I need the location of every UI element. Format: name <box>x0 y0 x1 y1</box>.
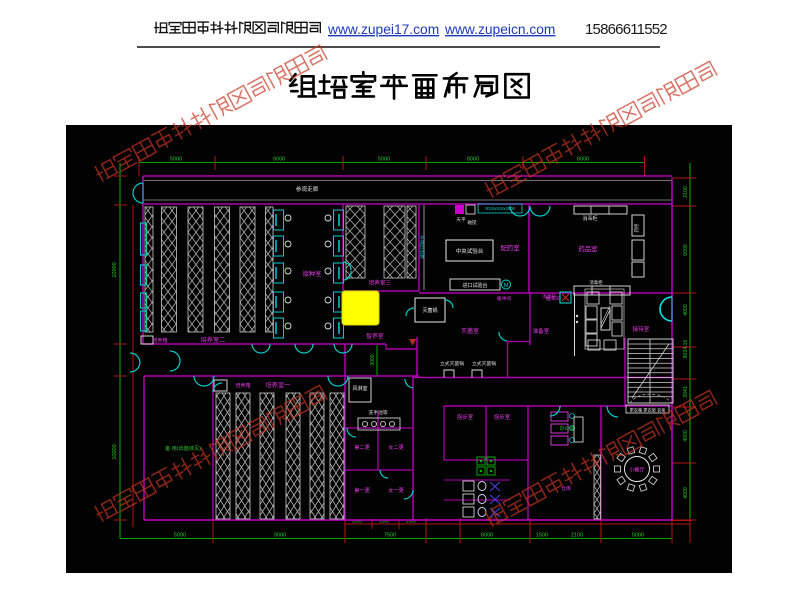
svg-text:2100: 2100 <box>683 186 689 198</box>
svg-text:9000: 9000 <box>273 157 285 163</box>
svg-text:接待室: 接待室 <box>633 325 650 333</box>
svg-text:8000: 8000 <box>467 157 479 163</box>
svg-text:灭菌室: 灭菌室 <box>461 327 479 335</box>
svg-text:10000: 10000 <box>112 262 118 277</box>
svg-text:10000: 10000 <box>112 444 118 459</box>
svg-text:培养室三: 培养室三 <box>369 279 392 287</box>
svg-text:缓冲间: 缓冲间 <box>497 295 512 302</box>
svg-text:9000: 9000 <box>274 533 286 539</box>
svg-text:5000: 5000 <box>632 533 644 539</box>
svg-text:培养箱: 培养箱 <box>152 337 167 344</box>
svg-text:www.zupei17.com: www.zupei17.com <box>327 22 439 37</box>
svg-text:接种室: 接种室 <box>303 270 322 278</box>
svg-text:立式灭菌锅: 立式灭菌锅 <box>472 360 496 367</box>
svg-text:洗手池等: 洗手池等 <box>368 409 387 416</box>
svg-text:小餐厅: 小餐厅 <box>629 466 645 474</box>
svg-text:8000: 8000 <box>577 157 589 163</box>
svg-text:8000: 8000 <box>481 533 493 539</box>
svg-text:第一更: 第一更 <box>354 486 370 494</box>
svg-text:办公室: 办公室 <box>559 425 574 432</box>
svg-text:4000: 4000 <box>683 430 689 442</box>
svg-text:天平: 天平 <box>456 217 466 223</box>
svg-text:仓库: 仓库 <box>561 485 571 492</box>
svg-text:中央试验台: 中央试验台 <box>456 247 484 255</box>
svg-text:第二更: 第二更 <box>354 443 370 451</box>
svg-text:2041: 2041 <box>683 386 689 398</box>
svg-text:女一更: 女一更 <box>388 486 404 494</box>
svg-text:4000: 4000 <box>683 304 689 316</box>
svg-text:药柜: 药柜 <box>633 223 640 232</box>
svg-text:培养箱: 培养箱 <box>235 382 250 389</box>
svg-text:www.zupeicn.com: www.zupeicn.com <box>444 22 555 37</box>
svg-text:5000: 5000 <box>378 157 390 163</box>
svg-text:拐步室: 拐步室 <box>494 413 511 421</box>
svg-text:进口试验台: 进口试验台 <box>462 282 487 289</box>
svg-text:2100: 2100 <box>571 533 583 539</box>
svg-text:配药室: 配药室 <box>500 243 520 252</box>
svg-text:推车间: 推车间 <box>546 295 561 302</box>
svg-text:6000: 6000 <box>683 244 689 256</box>
svg-text:M: M <box>504 283 509 289</box>
svg-text:准备室: 准备室 <box>533 327 550 335</box>
svg-text:药品室: 药品室 <box>578 244 598 253</box>
svg-text:7500: 7500 <box>384 533 396 539</box>
svg-text:更衣箱 更衣架 衣柜: 更衣箱 更衣架 衣柜 <box>630 407 666 414</box>
svg-text:4000: 4000 <box>683 487 689 499</box>
svg-text:消毒柜: 消毒柜 <box>589 279 603 286</box>
svg-text:拐步室: 拐步室 <box>457 413 474 421</box>
svg-text:减压试验台: 减压试验台 <box>419 235 426 259</box>
svg-text:3000: 3000 <box>370 354 376 365</box>
svg-text:9024.16: 9024.16 <box>683 340 689 359</box>
svg-text:15866611552: 15866611552 <box>585 21 667 38</box>
svg-text:立式灭菌锅: 立式灭菌锅 <box>440 360 464 367</box>
svg-text:灭菌锅: 灭菌锅 <box>422 307 437 314</box>
svg-text:智养室: 智养室 <box>366 332 384 340</box>
svg-text:培养室一: 培养室一 <box>266 382 291 390</box>
svg-text:女二更: 女二更 <box>388 443 404 451</box>
svg-text:磁搅: 磁搅 <box>468 219 477 226</box>
svg-text:培养室二: 培养室二 <box>201 336 226 344</box>
svg-text:5000: 5000 <box>170 157 182 163</box>
svg-text:消毒柜: 消毒柜 <box>582 215 597 222</box>
svg-text:备 用(出菇液灭): 备 用(出菇液灭) <box>165 444 201 452</box>
svg-text:5000: 5000 <box>174 533 186 539</box>
svg-text:参观走廊: 参观走廊 <box>296 185 319 193</box>
svg-text:风淋室: 风淋室 <box>352 385 367 392</box>
svg-text:1500: 1500 <box>536 533 548 539</box>
